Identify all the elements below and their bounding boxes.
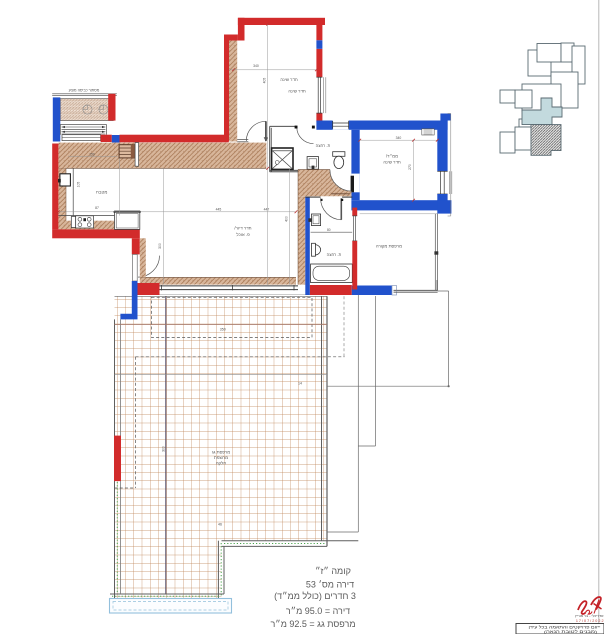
- svg-text:3 חדרים (כולל ממ״ד): 3 חדרים (כולל ממ״ד): [274, 591, 356, 601]
- svg-text:מרפסת מקורה: מרפסת מקורה: [376, 243, 402, 248]
- svg-text:מרפסת גג = 92.5 מ״ר: מרפסת גג = 92.5 מ״ר: [270, 619, 355, 629]
- svg-text:חדר שינה: חדר שינה: [383, 160, 401, 165]
- svg-text:300: 300: [162, 446, 166, 452]
- svg-text:340: 340: [253, 64, 259, 68]
- svg-text:(מבנים לטובת הנאה): (מבנים לטובת הנאה): [544, 629, 598, 634]
- svg-text:105: 105: [76, 182, 80, 188]
- svg-text:405: 405: [263, 78, 267, 84]
- svg-text:150: 150: [89, 152, 95, 156]
- svg-text:מטבח: מטבח: [96, 189, 107, 194]
- svg-text:46: 46: [218, 523, 222, 527]
- svg-text:מסתור כביסה מוצע: מסתור כביסה מוצע: [69, 89, 100, 93]
- svg-text:מרוצפת: מרוצפת: [214, 455, 228, 460]
- svg-text:1 7 / 0 7 / 2 0 2 2: 1 7 / 0 7 / 2 0 2 2: [576, 619, 604, 623]
- svg-text:חדר שינה: חדר שינה: [280, 77, 298, 82]
- svg-text:ת. רחצה: ת. רחצה: [327, 252, 342, 257]
- svg-text:חדר שינה: חדר שינה: [288, 89, 306, 94]
- svg-text:קומה ״ז״: קומה ״ז״: [315, 566, 351, 576]
- svg-text:300: 300: [158, 243, 162, 249]
- svg-text:400: 400: [284, 216, 288, 222]
- svg-text:270: 270: [408, 164, 412, 170]
- svg-text:דירה מס׳ 53: דירה מס׳ 53: [306, 580, 354, 590]
- svg-text:80: 80: [327, 228, 331, 232]
- svg-text:340: 340: [396, 136, 402, 140]
- svg-text:87: 87: [95, 206, 99, 210]
- svg-text:דירה = 95.0 מ״ר: דירה = 95.0 מ״ר: [286, 606, 350, 616]
- svg-text:350: 350: [220, 328, 226, 332]
- svg-text:חלקה: חלקה: [216, 461, 226, 466]
- svg-text:ת. רחצה: ת. רחצה: [316, 143, 331, 148]
- svg-text:445: 445: [216, 207, 222, 211]
- svg-text:חדר דיור/: חדר דיור/: [234, 226, 251, 231]
- svg-text:מרפסת גג: מרפסת גג: [212, 450, 230, 455]
- svg-text:14: 14: [298, 382, 302, 386]
- svg-text:אדריכלי - בר אוריין: אדריכלי - בר אוריין: [575, 614, 604, 618]
- svg-text:447: 447: [264, 207, 270, 211]
- svg-text:פ. אוכל: פ. אוכל: [236, 232, 250, 237]
- svg-text:ממ״ד/: ממ״ד/: [386, 154, 398, 159]
